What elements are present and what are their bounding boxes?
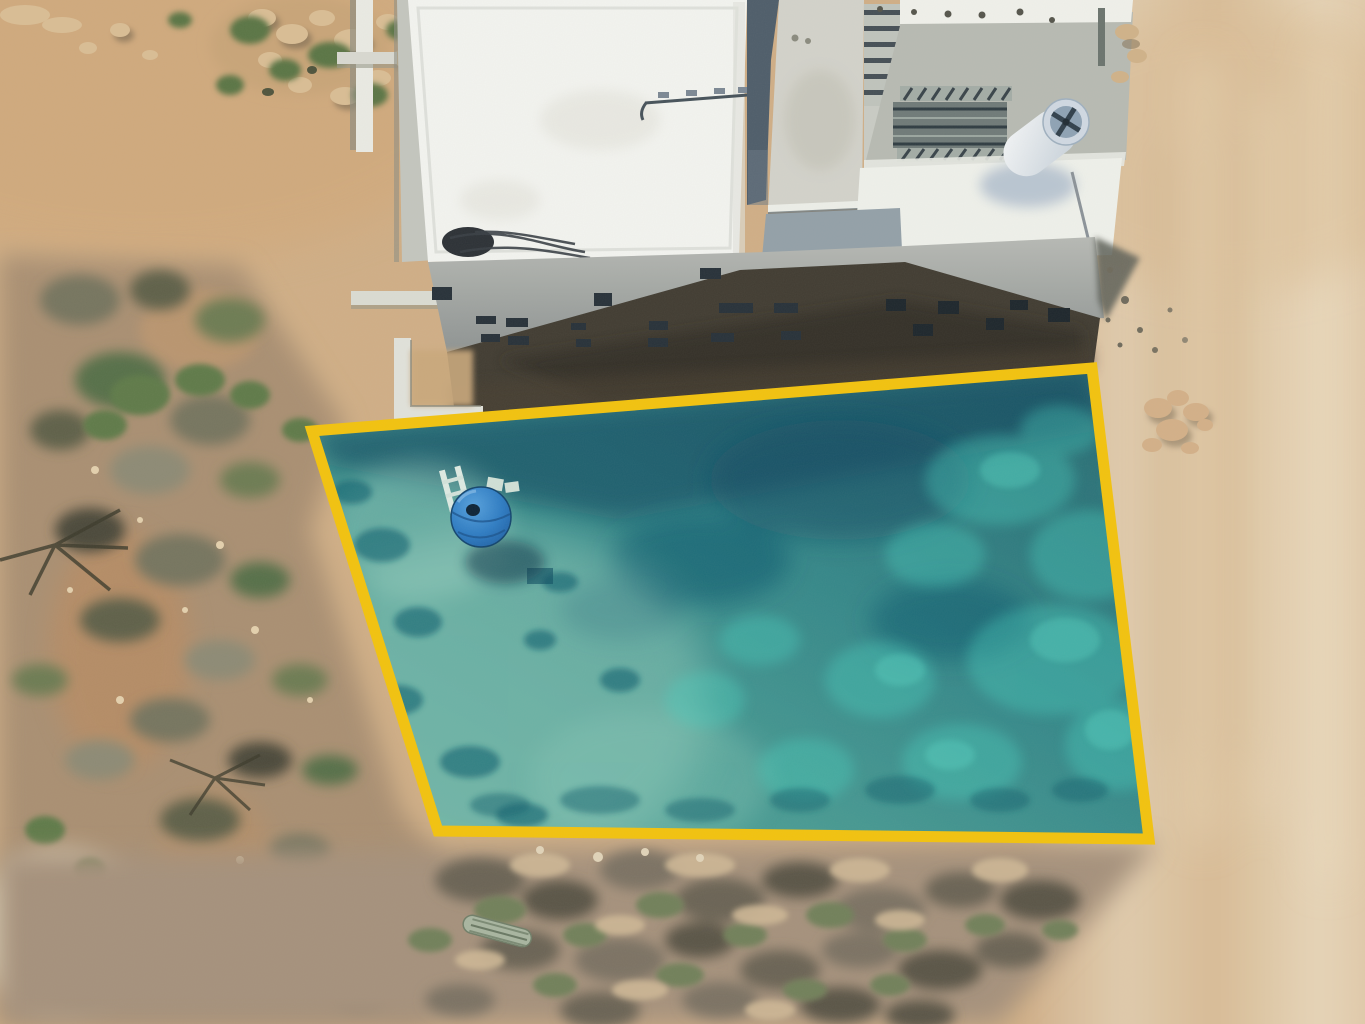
photo-grain — [0, 0, 1365, 1024]
aerial-photo — [0, 0, 1365, 1024]
aerial-photo-scene — [0, 0, 1365, 1024]
